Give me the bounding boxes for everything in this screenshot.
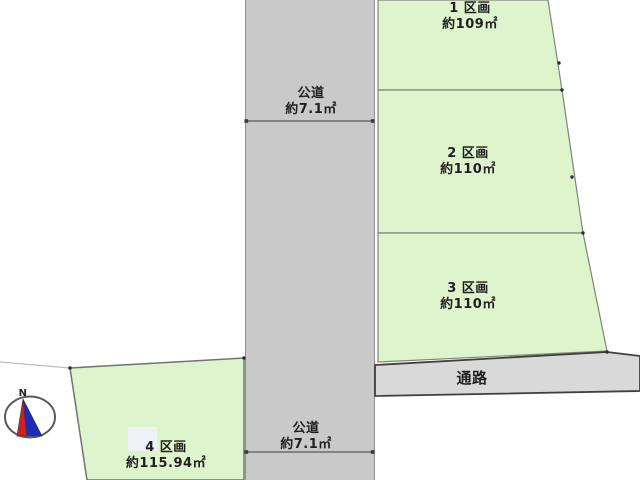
dimension-end-mark xyxy=(371,450,375,454)
plot-3-name: 3 区画 xyxy=(440,281,496,297)
plot-3-label: 3 区画 約110㎡ xyxy=(440,281,496,313)
road-name-top: 公道 xyxy=(285,86,337,102)
dimension-end-mark xyxy=(245,119,249,123)
dimension-end-mark xyxy=(245,450,249,454)
plot-map-stage: 1 区画 約109㎡ 2 区画 約110㎡ 3 区画 約110㎡ 4 区画 約1… xyxy=(0,0,640,480)
plot-3-area: 約110㎡ xyxy=(440,297,496,313)
road-label-bottom: 公道 約7.1㎡ xyxy=(280,421,332,453)
road-size-bottom: 約7.1㎡ xyxy=(280,437,332,453)
public-road-area xyxy=(245,0,375,480)
road-name-bottom: 公道 xyxy=(280,421,332,437)
plot-4-label: 4 区画 約115.94㎡ xyxy=(126,440,206,472)
plot-2-label: 2 区画 約110㎡ xyxy=(440,146,496,178)
road-size-top: 約7.1㎡ xyxy=(285,102,337,118)
faint-boundary-line xyxy=(0,362,70,368)
plot-4-area: 約115.94㎡ xyxy=(126,456,206,472)
plot-map-canvas xyxy=(0,0,640,480)
compass-north-label: N xyxy=(19,388,28,399)
plot-1-area: 約109㎡ xyxy=(442,17,498,33)
plot-2-name: 2 区画 xyxy=(440,146,496,162)
plot-1-name: 1 区画 xyxy=(442,1,498,17)
plot-4-name: 4 区画 xyxy=(126,440,206,456)
plot-2-area: 約110㎡ xyxy=(440,162,496,178)
compass xyxy=(5,397,55,438)
road-label-top: 公道 約7.1㎡ xyxy=(285,86,337,118)
passage-label: 通路 xyxy=(456,369,487,387)
dimension-end-mark xyxy=(371,119,375,123)
plot-1-label: 1 区画 約109㎡ xyxy=(442,1,498,33)
